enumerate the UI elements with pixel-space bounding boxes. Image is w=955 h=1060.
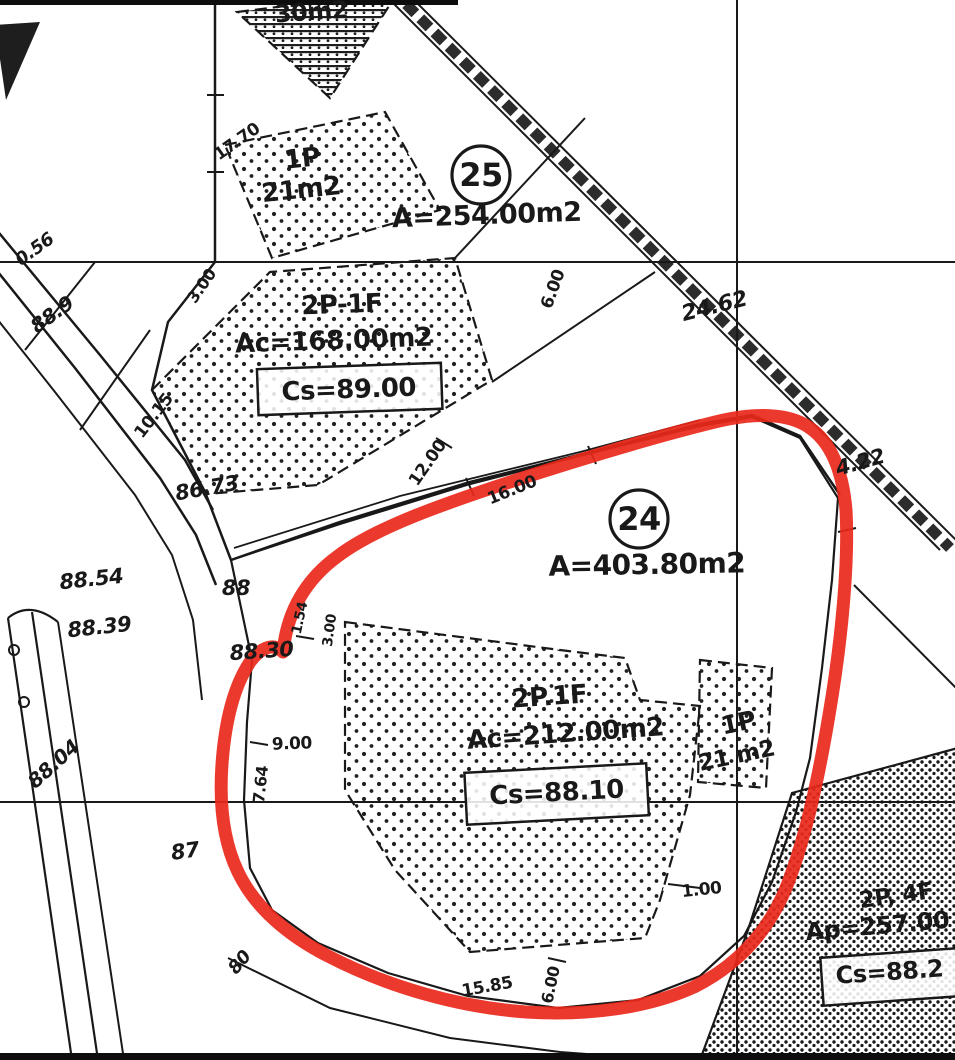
parcel-25-number: 25 — [459, 156, 503, 194]
cadastral-map-svg: 25A=254.00m224A=403.80m2 30m21P21m22P-1F… — [0, 0, 955, 1060]
spot-87: 87 — [169, 837, 201, 865]
scan-edge-top — [0, 0, 458, 5]
building-label-cs89: Cs=89.00 — [281, 373, 417, 408]
cadastral-map: 25A=254.00m224A=403.80m2 30m21P21m22P-1F… — [0, 0, 955, 1060]
scan-edge-bottom — [0, 1053, 955, 1060]
dim-7-64: 7.64 — [249, 764, 272, 804]
building-label-1p-25: 1P — [283, 142, 322, 176]
building-label-2p1f-24: 2P.1F — [511, 679, 589, 714]
spot-88-30: 88.30 — [229, 637, 294, 665]
dim-1-00: 1.00 — [681, 878, 723, 902]
parcel-24-number: 24 — [617, 500, 661, 538]
parcel-24-area: A=403.80m2 — [548, 546, 745, 582]
parcel-25-area: A=254.00m2 — [391, 197, 582, 235]
spot-88: 88 — [222, 576, 250, 600]
building-label-2p1f-25: 2P-1F — [301, 289, 383, 322]
dim-9-00: 9.00 — [272, 733, 313, 754]
